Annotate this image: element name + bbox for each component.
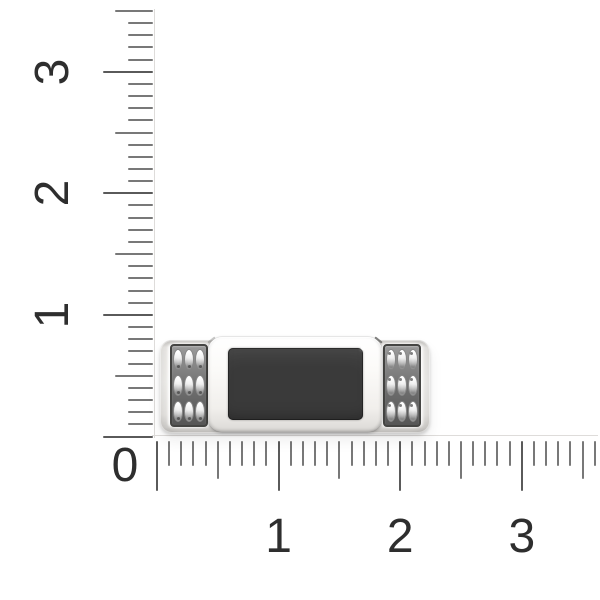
ruler-tick bbox=[557, 441, 559, 466]
ruler-tick bbox=[582, 441, 584, 479]
ruler-tick bbox=[156, 441, 158, 491]
ruler-tick bbox=[387, 441, 389, 466]
bead bbox=[397, 349, 407, 370]
bead bbox=[173, 349, 183, 370]
ruler-tick bbox=[484, 441, 486, 466]
bead bbox=[386, 349, 396, 370]
bead bbox=[173, 375, 183, 396]
jewelry-item bbox=[160, 337, 430, 434]
ruler-tick bbox=[241, 441, 243, 466]
ruler-tick bbox=[180, 441, 182, 466]
onyx-inlay bbox=[228, 348, 363, 420]
ruler-tick bbox=[496, 441, 498, 466]
bead bbox=[195, 401, 205, 422]
ruler-number: 3 bbox=[508, 513, 535, 561]
ruler-number: 1 bbox=[265, 513, 292, 561]
ruler-tick bbox=[472, 441, 474, 466]
bead bbox=[386, 401, 396, 422]
product-photo-canvas: 123 123 0 bbox=[0, 0, 600, 600]
ruler-tick bbox=[509, 441, 511, 466]
stone-glint bbox=[361, 346, 365, 350]
ruler-origin-label: 0 bbox=[112, 442, 139, 490]
ruler-tick bbox=[302, 441, 304, 466]
bead bbox=[408, 401, 418, 422]
ruler-tick bbox=[278, 441, 280, 491]
ruler-tick bbox=[411, 441, 413, 466]
ruler-tick bbox=[205, 441, 207, 466]
ruler-tick bbox=[521, 441, 523, 491]
horizontal-ruler-cm: 123 bbox=[0, 0, 600, 600]
bead bbox=[184, 375, 194, 396]
ruler-tick bbox=[326, 441, 328, 466]
ruler-tick bbox=[168, 441, 170, 466]
bead bbox=[173, 401, 183, 422]
bead-panel-left bbox=[170, 344, 208, 427]
ruler-tick bbox=[192, 441, 194, 466]
ruler-tick bbox=[338, 441, 340, 479]
center-frame bbox=[208, 337, 382, 432]
ruler-tick bbox=[424, 441, 426, 466]
ruler-tick bbox=[351, 441, 353, 466]
bead bbox=[184, 349, 194, 370]
bead bbox=[184, 401, 194, 422]
ruler-tick bbox=[399, 441, 401, 491]
ruler-tick bbox=[533, 441, 535, 466]
ruler-tick bbox=[569, 441, 571, 466]
ruler-tick bbox=[229, 441, 231, 466]
bead bbox=[195, 375, 205, 396]
ruler-tick bbox=[460, 441, 462, 479]
bead-grid bbox=[173, 347, 205, 424]
ruler-tick bbox=[594, 441, 596, 466]
ruler-tick bbox=[314, 441, 316, 466]
bead bbox=[408, 375, 418, 396]
ruler-number: 2 bbox=[387, 513, 414, 561]
ruler-tick bbox=[363, 441, 365, 466]
ruler-tick bbox=[448, 441, 450, 466]
bead bbox=[397, 375, 407, 396]
ruler-tick bbox=[375, 441, 377, 466]
ruler-tick bbox=[290, 441, 292, 466]
ruler-edge-line bbox=[152, 435, 598, 436]
ruler-tick bbox=[436, 441, 438, 466]
bead bbox=[408, 349, 418, 370]
bead-grid bbox=[386, 347, 418, 424]
ruler-tick bbox=[253, 441, 255, 466]
ruler-tick bbox=[217, 441, 219, 479]
bead-panel-right bbox=[383, 344, 421, 427]
bead bbox=[195, 349, 205, 370]
bead bbox=[397, 401, 407, 422]
bead bbox=[386, 375, 396, 396]
ruler-tick bbox=[265, 441, 267, 466]
ruler-tick bbox=[545, 441, 547, 466]
